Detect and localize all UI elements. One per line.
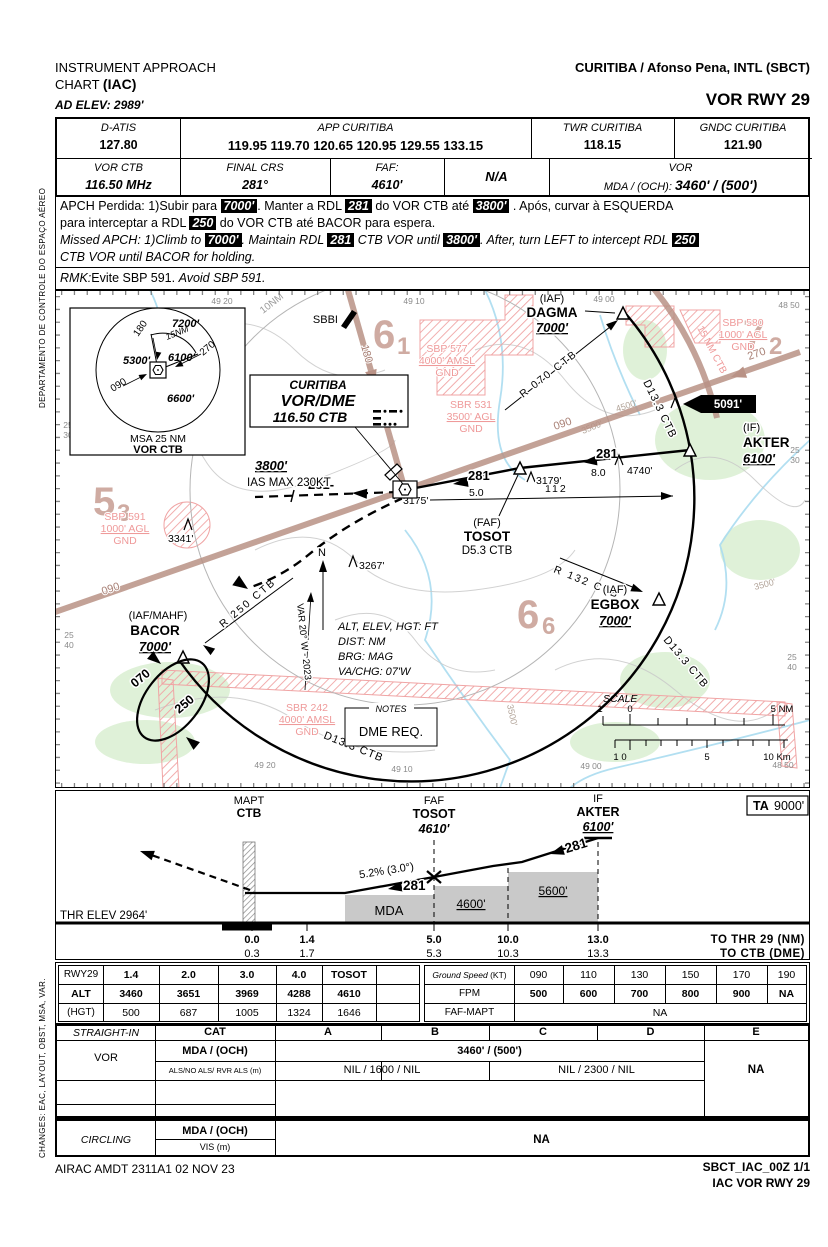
sbp580-gnd: GND (731, 341, 755, 353)
hgt-label: (HGT) (59, 1007, 103, 1018)
faf-label: FAF: (330, 162, 444, 174)
legend-brg: BRG: MAG (338, 651, 393, 663)
als-value-ab: NIL / 1600 / NIL (275, 1064, 489, 1076)
tosot-dme: D5.3 CTB (462, 545, 513, 557)
hgt-4: 1324 (276, 1007, 322, 1019)
block-5600: 5600' (539, 884, 568, 898)
na-cell: N/A (444, 169, 549, 184)
notes-box: NOTES DME REQ. (345, 703, 437, 746)
alt-label: ALT (59, 988, 103, 1000)
hgt-1: 500 (103, 1007, 159, 1019)
circling-label: CIRCLING (57, 1134, 155, 1146)
bignum-6: 6 (373, 313, 395, 357)
grid-right-25b: 25 (787, 652, 797, 662)
msa-station: VOR CTB (133, 444, 183, 456)
profile-crs-281a: 281 (403, 878, 426, 893)
bignum-66: 6 (517, 593, 539, 637)
profile-view: 281 281 5.2% (3.0°) MAPT CTB FAF TOSOT 4… (55, 790, 810, 960)
dist-3: 3.0 (218, 969, 276, 981)
dme-3: 10.3 (497, 948, 518, 960)
sbr242-name: SBR 242 (286, 702, 328, 714)
tosot-name: TOSOT (464, 529, 511, 544)
hl-7000: 7000' (221, 199, 258, 213)
gnd-freq: 121.90 (674, 138, 812, 152)
vor-type: VOR/DME (281, 393, 357, 410)
datis-label: D-ATIS (57, 122, 180, 134)
egbox-type: (IAF) (603, 584, 627, 596)
cat-label: CAT (155, 1026, 275, 1038)
fpm-500: 500 (514, 988, 563, 1000)
faf-alt: 4610' (330, 178, 444, 192)
mda-block-label: MDA (375, 903, 404, 918)
fpm-na: NA (767, 988, 806, 1000)
akter-name: AKTER (743, 435, 790, 450)
missed-approach-box: APCH Perdida: 1)Subir para 7000'. Manter… (55, 197, 810, 268)
alt-4: 4288 (276, 988, 322, 1000)
descent-tables-strip: RWY29 1.4 2.0 3.0 4.0 TOSOT ALT 3460 365… (55, 962, 810, 1024)
vor-minima-label: VOR (549, 162, 812, 174)
profile-faf-alt: 4610' (418, 822, 451, 836)
profile-faf-label: FAF (424, 795, 444, 807)
hl-281-en: 281 (327, 233, 354, 247)
akter-type: (IF) (743, 422, 760, 434)
alt-tosot: 4610 (322, 988, 376, 1000)
dme-row-label: TO CTB (DME) (720, 948, 805, 960)
gs-090: 090 (514, 969, 563, 981)
grid-top-4910: 49 10 (403, 296, 425, 306)
dist-8nm: 8.0 (591, 467, 606, 479)
dist-tosot: TOSOT (322, 969, 376, 981)
alt-3800-label: 3800' (255, 458, 288, 473)
akter-alt: 6100' (743, 451, 776, 466)
circling-mda-label: MDA / (OCH) (155, 1125, 275, 1137)
cat-a: A (275, 1026, 381, 1038)
profile-faf-name: TOSOT (413, 807, 456, 821)
notes-title: NOTES (375, 704, 406, 714)
sbr531-name: SBR 531 (450, 399, 492, 411)
obstacle-3179: 3179' (536, 475, 561, 487)
sbp577-alt: 4000' AMSL (419, 355, 475, 367)
fpm-800: 800 (665, 988, 716, 1000)
north-label: N (318, 547, 326, 559)
fpm-900: 900 (716, 988, 767, 1000)
rmk-box: RMK:Evite SBP 591. Avoid SBP 591. (55, 268, 810, 290)
vor-row-label: VOR (57, 1052, 155, 1064)
vor-label: VOR CTB (57, 162, 180, 174)
egbox-name: EGBOX (591, 597, 640, 612)
dme-0: 0.3 (244, 948, 259, 960)
cat-b: B (381, 1026, 489, 1038)
grid-bot-4920: 49 20 (254, 760, 276, 770)
sbp591-name: SBP 591 (104, 511, 145, 523)
final-crs: 281° (180, 178, 330, 192)
scale-title: SCALE (603, 693, 638, 705)
scale-nm-1: 1 (597, 704, 602, 715)
legend-alt: ALT, ELEV, HGT: FT (337, 621, 439, 633)
sbp580-name: SBP 580 (722, 317, 763, 329)
msa-inset: 7200' 180 15NM 5300' 6100' 270 090 6600'… (70, 308, 245, 456)
sidebar-changes-text: CHANGES: EAC, LAYOUT, OBST, MSA, VAR. (38, 978, 47, 1158)
hl-250-en: 250 (672, 233, 699, 247)
dist-4: 4.0 (276, 969, 322, 981)
chart-name: IAC VOR RWY 29 (0, 1176, 810, 1190)
scale-nm-5: 5 NM (771, 704, 794, 715)
mda-prefix: MDA / (OCH): (604, 181, 672, 193)
legend-va: VA/CHG: 07'W (338, 666, 412, 678)
obstacle-3341: 3341' (168, 533, 193, 545)
block-4600: 4600' (457, 897, 486, 911)
comm-table: D-ATIS 127.80 APP CURITIBA 119.95 119.70… (55, 117, 810, 197)
sbr242-gnd: GND (295, 726, 319, 738)
fpm-label: FPM (425, 988, 514, 999)
sbr531-gnd: GND (459, 423, 483, 435)
sbp591-gnd: GND (113, 535, 137, 547)
grid-left-25b: 25 (64, 630, 74, 640)
gs-190: 190 (767, 969, 806, 981)
gs-130: 130 (614, 969, 665, 981)
app-freqs: 119.95 119.70 120.65 120.95 129.55 133.1… (180, 138, 531, 153)
nm-4: 13.0 (587, 934, 608, 946)
alt-1: 3460 (103, 988, 159, 1000)
nm-1: 1.4 (299, 934, 315, 946)
obstacle-4740: 4740' (627, 465, 652, 477)
als-value-cd: NIL / 2300 / NIL (489, 1064, 704, 1076)
gs-label: Ground Speed (KT) (425, 970, 514, 980)
profile-if-label: IF (593, 793, 603, 805)
scale-km-5: 5 (704, 752, 709, 763)
dist-5nm: 5.0 (469, 487, 484, 499)
minimums-table: STRAIGHT-IN CAT A B C D E VOR MDA / (OCH… (55, 1024, 810, 1157)
grid-top-4850: 48 50 (778, 300, 800, 310)
nm-2: 5.0 (426, 934, 441, 946)
mda-och-label: MDA / (OCH) (155, 1045, 275, 1057)
dme-4: 13.3 (587, 948, 608, 960)
grid-top-4920: 49 20 (211, 296, 233, 306)
procedure-title: VOR RWY 29 (0, 90, 810, 110)
final-crs-label: FINAL CRS (180, 162, 330, 174)
vor-freq-ident: 116.50 CTB (273, 409, 347, 425)
ta-label: TA (753, 799, 769, 813)
sbp577-name: SBP 577 (426, 343, 467, 355)
descent-table-right: Ground Speed (KT) 090 110 130 150 170 19… (424, 965, 807, 1022)
bacor-type: (IAF/MAHF) (129, 610, 188, 622)
grid-bot-4900: 49 00 (580, 761, 602, 771)
app-label: APP CURITIBA (180, 122, 531, 134)
missed-pt-1: APCH Perdida: 1)Subir para 7000'. Manter… (60, 199, 673, 213)
scale-nm-0: 0 (627, 704, 632, 715)
vis-label: VIS (m) (155, 1142, 275, 1152)
missed-en-1: Missed APCH: 1)Climb to 7000'. Maintain … (60, 233, 699, 247)
plan-view: 4500' 3500' 3500' 3500' 61 72 53 66 (55, 290, 810, 788)
mapt-bar (243, 842, 255, 923)
twr-label: TWR CURITIBA (531, 122, 674, 134)
obstacle-3267: 3267' (359, 560, 384, 572)
dme-1: 1.7 (299, 948, 314, 960)
grid-right-25a: 25 (790, 445, 800, 455)
airport-name: CURITIBA / Afonso Pena, INTL (SBCT) (0, 60, 810, 75)
thr-elev-label: THR ELEV 2964' (60, 910, 147, 922)
cat-d: D (597, 1026, 704, 1038)
obstacle-5091: 5091' (714, 399, 743, 411)
straight-in-label: STRAIGHT-IN (57, 1027, 155, 1039)
egbox-alt: 7000' (599, 613, 632, 628)
bacor-name: BACOR (130, 623, 180, 638)
nm-row-label: TO THR 29 (NM) (711, 934, 805, 946)
grid-bot-4910: 49 10 (391, 764, 413, 774)
gs-110: 110 (563, 969, 614, 981)
vor-freq: 116.50 MHz (57, 178, 180, 192)
rmk-text: RMK:Evite SBP 591. Avoid SBP 591. (60, 271, 265, 285)
cat-e-na: NA (704, 1064, 808, 1076)
alt-2: 3651 (159, 988, 218, 1000)
ias-max-label: IAS MAX 230KT (247, 477, 331, 489)
ta-value: 9000' (774, 799, 804, 813)
hl-281: 281 (345, 199, 372, 213)
bignum-6s: 1 (397, 333, 410, 360)
dagma-alt: 7000' (536, 320, 569, 335)
nm-0: 0.0 (244, 934, 259, 946)
faf-mapt-value: NA (514, 1007, 806, 1019)
scale-km-1: 1 0 (613, 752, 626, 763)
vor-city: CURITIBA (289, 378, 346, 392)
cat-c: C (489, 1026, 597, 1038)
hgt-2: 687 (159, 1007, 218, 1019)
runway-bar (222, 925, 272, 931)
sbr531-alt: 3500' AGL (447, 411, 496, 423)
gs-150: 150 (665, 969, 716, 981)
grid-right-30a: 30 (790, 455, 800, 465)
course-281-label-1: 281 (468, 468, 490, 483)
msa-6100: 6100' (168, 352, 195, 364)
missed-pt-2: para interceptar a RDL 250 do VOR CTB at… (60, 216, 435, 230)
alt-3: 3969 (218, 988, 276, 1000)
als-label: ALS/NO ALS/ RVR ALS (m) (155, 1066, 275, 1075)
bacor-alt: 7000' (139, 639, 172, 654)
nm-3: 10.0 (497, 934, 518, 946)
datis-freq: 127.80 (57, 138, 180, 152)
gs-170: 170 (716, 969, 767, 981)
twr-freq: 118.15 (531, 138, 674, 152)
dagma-name: DAGMA (527, 305, 578, 320)
sbp591-alt: 1000' AGL (101, 523, 150, 535)
tosot-type: (FAF) (473, 517, 501, 529)
fpm-700: 700 (614, 988, 665, 1000)
msa-5300: 5300' (123, 355, 150, 367)
sidebar-agency-text: DEPARTAMENTO DE CONTROLE DO ESPAÇO AÉREO (38, 188, 47, 408)
circling-na: NA (275, 1134, 808, 1146)
course-281-label-2: 281 (596, 446, 618, 461)
hl-3800: 3800' (473, 199, 510, 213)
profile-if-name: AKTER (576, 805, 619, 819)
faf-mapt-label: FAF-MAPT (425, 1007, 514, 1018)
bignum-66s: 6 (542, 613, 555, 640)
dist-2: 2.0 (159, 969, 218, 981)
grid-right-40b: 40 (787, 662, 797, 672)
dist-1: 1.4 (103, 969, 159, 981)
cat-e: E (704, 1026, 808, 1038)
mda-och-value: 3460' / (500') (275, 1045, 704, 1057)
missed-en-2: CTB VOR until BACOR for holding. (60, 250, 255, 264)
hl-250: 250 (189, 216, 216, 230)
dme-2: 5.3 (426, 948, 441, 960)
mda-och: MDA / (OCH): 3460' / (500') (549, 177, 812, 193)
legend-dist: DIST: NM (338, 636, 386, 648)
mda-value: 3460' / (500') (675, 177, 757, 193)
hl-3800-en: 3800' (443, 233, 480, 247)
msa-6600: 6600' (167, 393, 194, 405)
sbp580-alt: 1000' AGL (719, 329, 768, 341)
notes-dme-req: DME REQ. (359, 724, 423, 739)
chart-id: SBCT_IAC_00Z 1/1 (0, 1160, 810, 1174)
descent-table-left: RWY29 1.4 2.0 3.0 4.0 TOSOT ALT 3460 365… (58, 965, 420, 1022)
grid-left-40b: 40 (64, 640, 74, 650)
fpm-600: 600 (563, 988, 614, 1000)
gnd-label: GNDC CURITIBA (674, 122, 812, 134)
rwy-label: RWY29 (59, 969, 103, 980)
hl-7000-en: 7000' (205, 233, 242, 247)
grid-top-4900: 49 00 (593, 294, 615, 304)
grid-bot-4850: 48 50 (772, 760, 794, 770)
sbp577-gnd: GND (435, 367, 459, 379)
sbr242-alt: 4000' AMSL (279, 714, 335, 726)
mapt-ident: CTB (237, 806, 262, 820)
sbbi-label: SBBI (313, 314, 338, 326)
hgt-tosot: 1646 (322, 1007, 376, 1019)
profile-if-alt: 6100' (583, 820, 615, 834)
approach-chart-page: DEPARTAMENTO DE CONTROLE DO ESPAÇO AÉREO… (0, 0, 828, 1247)
hgt-3: 1005 (218, 1007, 276, 1019)
